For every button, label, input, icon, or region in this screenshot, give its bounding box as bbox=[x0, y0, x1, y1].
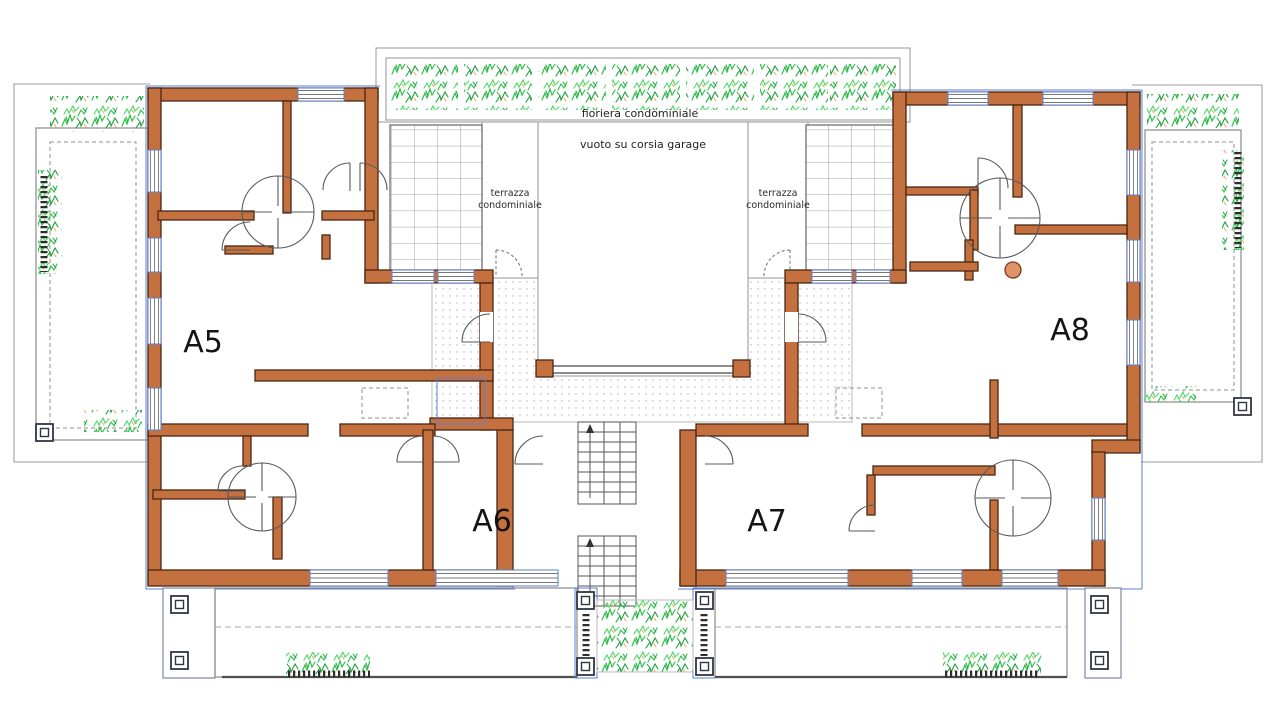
wall-seg bbox=[322, 211, 374, 220]
wall-seg bbox=[365, 88, 378, 283]
wall-seg bbox=[273, 497, 282, 559]
unit-label-a5: A5 bbox=[183, 325, 223, 360]
wall-seg bbox=[696, 424, 808, 436]
door-hub-a5 bbox=[242, 176, 314, 248]
window bbox=[856, 270, 890, 283]
wall-seg bbox=[680, 430, 696, 586]
wall-seg bbox=[990, 500, 998, 570]
left-terrace bbox=[36, 96, 148, 441]
window bbox=[948, 92, 988, 105]
right-terrace bbox=[1142, 94, 1251, 415]
window bbox=[1127, 320, 1140, 365]
deck-planter-center bbox=[597, 600, 693, 672]
hatch-dashed-left bbox=[362, 388, 408, 418]
shrub-cluster bbox=[390, 64, 458, 110]
terrace-post bbox=[1234, 398, 1251, 415]
wall-seg bbox=[283, 101, 291, 213]
stairwell bbox=[578, 422, 636, 606]
shrub-cluster bbox=[686, 64, 754, 110]
shrub-cluster bbox=[538, 64, 606, 110]
parapet-pier bbox=[733, 360, 750, 377]
shrub-cluster bbox=[612, 64, 680, 110]
right-terrace-plants-side bbox=[1222, 150, 1244, 250]
window bbox=[392, 270, 434, 283]
wall-seg bbox=[1015, 225, 1127, 234]
fioriera-label: fioriera condominiale bbox=[582, 107, 699, 120]
door-hub-a8 bbox=[960, 178, 1040, 258]
deck-post bbox=[696, 592, 713, 609]
skylight-grid-left bbox=[390, 125, 482, 271]
shrub-cluster bbox=[830, 64, 896, 110]
window bbox=[298, 88, 344, 101]
window bbox=[1127, 150, 1140, 195]
window bbox=[148, 238, 161, 272]
window bbox=[1043, 92, 1093, 105]
door-arc bbox=[218, 466, 243, 491]
parapet-pier bbox=[536, 360, 553, 377]
wall-seg bbox=[893, 92, 906, 283]
wall-seg bbox=[867, 475, 875, 515]
unit-label-a8: A8 bbox=[1050, 313, 1090, 348]
terrazza-right-label-line1: terrazza bbox=[759, 188, 798, 199]
wall-seg bbox=[158, 211, 254, 220]
garage-void bbox=[538, 122, 748, 376]
terrazza-left-label-line1: terrazza bbox=[491, 188, 530, 199]
wall-seg bbox=[906, 187, 978, 195]
skylight-grid-right bbox=[806, 125, 898, 271]
window bbox=[148, 150, 161, 192]
wall-seg bbox=[148, 424, 308, 436]
window bbox=[812, 270, 852, 283]
deck-post bbox=[1091, 596, 1108, 613]
right-terrace-plants-top bbox=[1147, 94, 1239, 128]
wall-seg bbox=[340, 424, 435, 436]
column-circle bbox=[1005, 262, 1021, 278]
door-opening bbox=[480, 312, 493, 342]
wall-seg bbox=[243, 436, 251, 466]
wall-seg bbox=[785, 283, 798, 430]
left-property-line bbox=[14, 84, 150, 462]
terrazza-right-label-line2: condominiale bbox=[746, 200, 810, 211]
door-arc bbox=[323, 163, 350, 191]
door-arc bbox=[397, 436, 423, 462]
door-arc bbox=[978, 158, 1008, 188]
wall-seg bbox=[423, 430, 433, 570]
wall-seg bbox=[893, 92, 1140, 105]
right-terrace-plants-bottom bbox=[1142, 386, 1196, 402]
door-opening bbox=[785, 312, 798, 342]
wall-seg bbox=[255, 370, 493, 381]
wall-seg bbox=[480, 283, 493, 430]
glazed-door bbox=[726, 570, 848, 586]
glazed-door bbox=[310, 570, 388, 586]
shrub-cluster bbox=[464, 64, 532, 110]
wall-seg bbox=[1092, 440, 1140, 453]
door-hub-a6 bbox=[228, 463, 296, 531]
unit-label-a6: A6 bbox=[472, 504, 512, 539]
terrazza-left-label-line2: condominiale bbox=[478, 200, 542, 211]
floor-plan-canvas: fioriera condominiale vuoto su corsia ga… bbox=[0, 0, 1280, 718]
left-terrace-plants-bottom bbox=[84, 410, 142, 432]
window bbox=[148, 388, 161, 430]
window bbox=[1002, 570, 1058, 586]
deck-post bbox=[577, 592, 594, 609]
deck-post bbox=[696, 658, 713, 675]
wall-seg bbox=[990, 380, 998, 438]
window bbox=[1127, 240, 1140, 282]
vuoto-label: vuoto su corsia garage bbox=[580, 138, 706, 151]
deck-post bbox=[1091, 652, 1108, 669]
left-terrace-plants-top bbox=[50, 96, 144, 132]
door-hub-a7 bbox=[975, 460, 1051, 536]
unit-label-a7: A7 bbox=[747, 504, 787, 539]
door-arc bbox=[433, 436, 459, 462]
glazed-door bbox=[436, 570, 558, 586]
wall-seg bbox=[322, 235, 330, 259]
deck-left bbox=[215, 588, 577, 677]
door-arc-stair-right bbox=[705, 436, 733, 464]
window bbox=[438, 270, 474, 283]
terrace-post bbox=[36, 424, 53, 441]
deck-post bbox=[577, 658, 594, 675]
stair-up-arrow bbox=[586, 424, 594, 433]
deck-post bbox=[171, 596, 188, 613]
window bbox=[912, 570, 962, 586]
door-arc-stair-left bbox=[515, 436, 543, 464]
window bbox=[1092, 498, 1105, 540]
window bbox=[148, 298, 161, 344]
wall-seg bbox=[873, 466, 995, 475]
shrub-cluster bbox=[760, 64, 828, 110]
left-terrace-dashed-outline bbox=[50, 142, 136, 428]
wall-seg bbox=[910, 262, 978, 271]
stair-up-arrow bbox=[586, 538, 594, 547]
deck-post bbox=[171, 652, 188, 669]
right-terrace-dashed-outline bbox=[1152, 142, 1234, 390]
bottom-terraces bbox=[163, 588, 1121, 678]
